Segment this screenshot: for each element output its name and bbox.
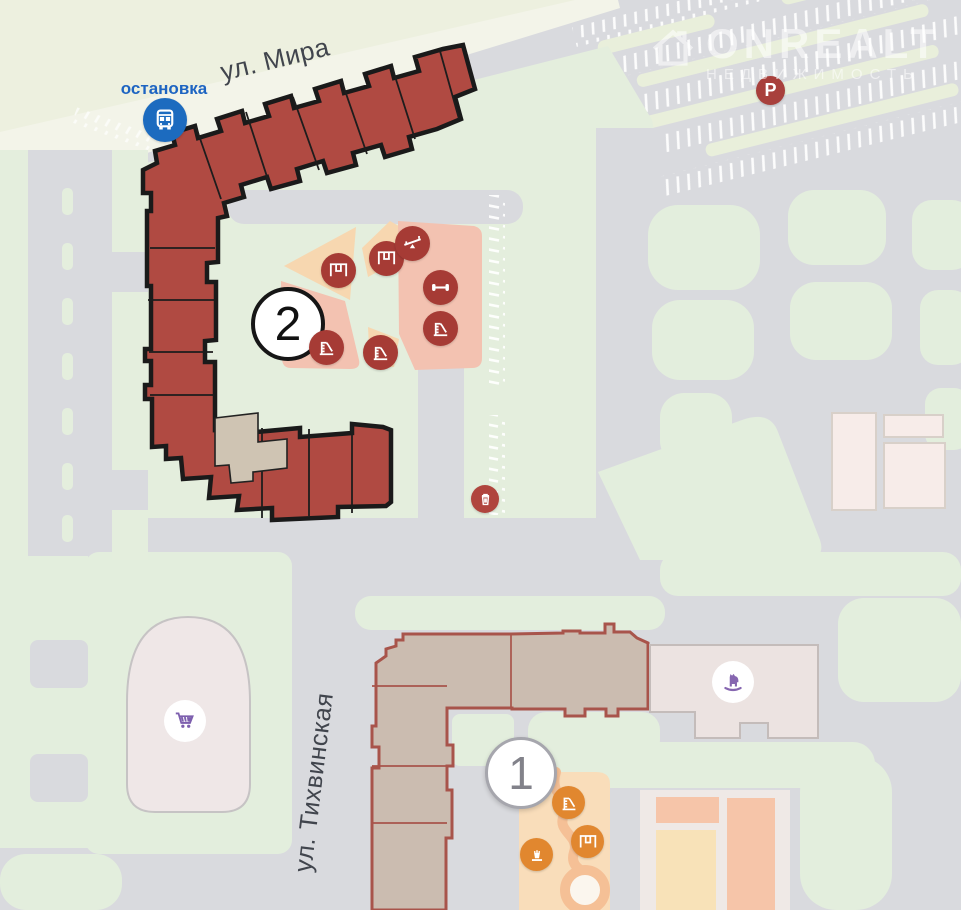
trash-bin-icon	[476, 490, 495, 509]
swing-icon	[577, 831, 599, 853]
playground-marker	[571, 825, 604, 858]
playground-marker	[363, 335, 398, 370]
site-plan-map: ул. Мира ул. Тихвинская остановка P 2 1	[0, 0, 961, 910]
swing-icon	[375, 247, 398, 270]
map-base-layers	[0, 0, 961, 910]
playground-marker	[423, 311, 458, 346]
trash-marker	[471, 485, 499, 513]
playground-marker	[395, 226, 430, 261]
kindergarten-marker	[712, 661, 754, 703]
building-1-marker[interactable]: 1	[485, 737, 557, 809]
playground-marker	[321, 253, 356, 288]
building-2-number: 2	[275, 297, 302, 352]
parking-marker: P	[756, 76, 785, 105]
slide-icon	[315, 336, 338, 359]
playground-marker	[552, 786, 585, 819]
swing-icon	[327, 259, 350, 282]
courtyard-path	[228, 190, 523, 224]
parking-letter: P	[764, 80, 776, 101]
sandbox-icon	[526, 844, 548, 866]
bus-icon	[150, 105, 180, 135]
rocking-horse-icon	[719, 668, 747, 696]
playground-marker	[520, 838, 553, 871]
playground-marker	[309, 330, 344, 365]
playground-marker	[423, 270, 458, 305]
shopping-cart-icon	[172, 708, 198, 734]
outbuildings	[832, 413, 945, 510]
building-1-number: 1	[508, 746, 534, 800]
parking-ticks-column	[489, 195, 505, 385]
seesaw-icon	[401, 232, 424, 255]
slide-icon	[558, 792, 580, 814]
bus-stop-label: остановка	[84, 79, 244, 99]
bus-stop-marker	[143, 98, 187, 142]
workout-icon	[429, 276, 452, 299]
slide-icon	[369, 341, 392, 364]
supermarket-marker	[164, 700, 206, 742]
slide-icon	[429, 317, 452, 340]
